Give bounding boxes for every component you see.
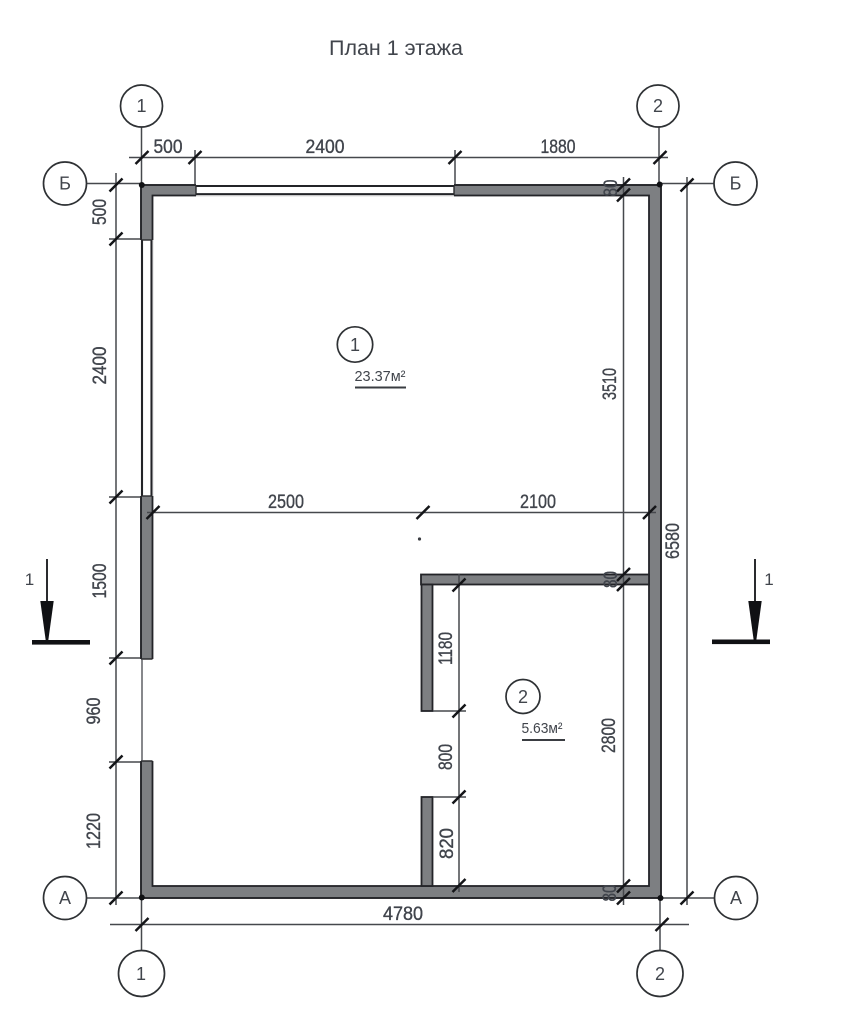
svg-text:800: 800 xyxy=(436,744,457,770)
svg-text:6580: 6580 xyxy=(663,523,684,559)
svg-text:80: 80 xyxy=(600,885,621,902)
svg-text:А: А xyxy=(730,888,742,908)
svg-text:1500: 1500 xyxy=(90,564,111,599)
svg-text:2: 2 xyxy=(653,96,663,116)
svg-text:1: 1 xyxy=(764,570,773,589)
svg-text:80: 80 xyxy=(601,180,622,197)
svg-text:1: 1 xyxy=(25,570,34,589)
svg-text:500: 500 xyxy=(90,199,111,225)
svg-text:960: 960 xyxy=(84,698,105,725)
svg-text:1: 1 xyxy=(350,335,360,355)
svg-text:Б: Б xyxy=(59,174,71,194)
svg-text:1880: 1880 xyxy=(541,137,576,158)
svg-text:80: 80 xyxy=(601,571,622,588)
svg-text:4780: 4780 xyxy=(383,904,423,925)
svg-text:2400: 2400 xyxy=(90,347,111,385)
svg-text:1180: 1180 xyxy=(436,632,457,665)
svg-text:500: 500 xyxy=(154,137,183,158)
svg-text:2: 2 xyxy=(655,964,665,984)
svg-text:2400: 2400 xyxy=(306,137,345,158)
svg-text:2500: 2500 xyxy=(268,492,304,513)
svg-text:5.63м²: 5.63м² xyxy=(522,720,563,737)
svg-text:3510: 3510 xyxy=(600,368,621,400)
svg-text:1220: 1220 xyxy=(84,813,105,849)
svg-text:А: А xyxy=(59,888,71,908)
svg-text:820: 820 xyxy=(437,828,458,859)
svg-text:1: 1 xyxy=(136,96,146,116)
svg-text:Б: Б xyxy=(730,174,742,194)
svg-text:2100: 2100 xyxy=(520,492,556,513)
svg-text:2: 2 xyxy=(518,687,528,707)
svg-text:2800: 2800 xyxy=(599,718,620,753)
svg-text:1: 1 xyxy=(136,964,146,984)
svg-text:План 1 этажа: План 1 этажа xyxy=(329,37,463,60)
svg-text:23.37м²: 23.37м² xyxy=(355,368,406,385)
